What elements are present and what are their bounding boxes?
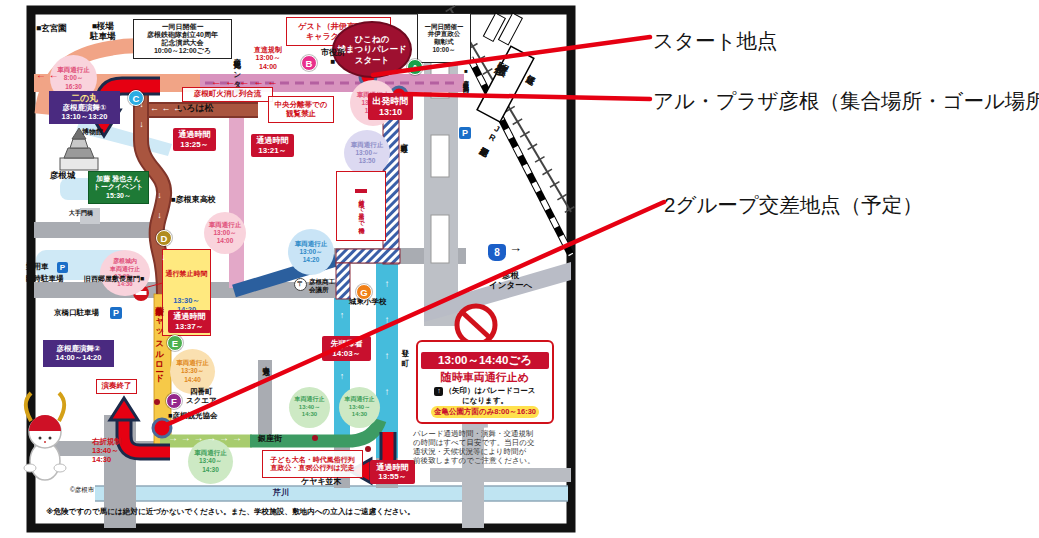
point-badge-e: E [167, 335, 183, 351]
label-chuo-street: 中央通り [261, 360, 270, 402]
closure-warning-panel: 13:00～14:40ごろ 随時車両通行止め ↑（矢印）はパレードコース になり… [416, 340, 554, 424]
label-copyright: ©彦根市 [70, 486, 94, 494]
label-saigo-gate: 旧西郷屋敷長屋門■ [84, 275, 144, 283]
warning-closure-text: 随時車両通行止め [441, 370, 529, 385]
waiting-strip: 待機区間 [355, 189, 367, 193]
pink-road-arrows: ← ← ← ← ← [211, 75, 278, 87]
label-yonbancho-square: 四番町 スクエア [186, 388, 217, 406]
noborimachi-arrows: ↑ ↑ ↑ ↑ [381, 266, 393, 410]
ban-time-title: 通行禁止時間 [163, 270, 210, 278]
label-museum: 博物館 [82, 128, 103, 136]
label-genkyuen: ■玄宮園 [36, 23, 67, 33]
parking-icon: P [57, 262, 68, 273]
brown-route-arrows-2: ↓ ↓ [154, 186, 165, 226]
post-mark-icon: 〒 [294, 278, 307, 291]
label-tourist-info: ■彦根市観光案内所 [462, 68, 469, 130]
screenshot: { "annotations": { "start": "スタート地点", "a… [0, 0, 1039, 538]
label-temp-parking: 臨時駐車場 [26, 275, 64, 284]
closure-badge-castle: 彦根城内 車両通行止 13:00～ 14:30 [100, 250, 150, 296]
label-tourism-association: ■彦根観光協会 [168, 412, 218, 421]
ninomaru-stage-box: 二の丸 彦根鹿演舞① 13:10～13:20 [49, 91, 120, 124]
closure-badge-10: 車両通行止 13:40～ 14:30 [339, 387, 380, 428]
label-right-turn-regulation: 右折規制 13:40～ 14:30 [92, 438, 122, 465]
label-city-hall: 市役所 ■ [321, 48, 345, 67]
iroha-route-arrows: ← ← ← [150, 103, 182, 113]
label-chamber-of-commerce: 〒 彦根商工 会議所 [294, 278, 335, 293]
label-sakuraba-parking: ■桜場 駐車場 [90, 21, 116, 41]
point-badge-g: G [356, 284, 372, 300]
label-keyaki-trees: ケヤキ並木 [301, 477, 342, 486]
point-badge-f: F [166, 393, 182, 409]
label-serikawa-river: 芹川 [273, 488, 289, 497]
warning-arrow-note: ↑（矢印）はパレードコース になります。 [434, 386, 535, 405]
hikeshi-join-box: 彦根町火消し列合流 [182, 87, 273, 102]
label-noborimachi: 登り町 [400, 343, 409, 375]
time-box-1325: 通過時間 13:25～ [173, 128, 216, 151]
warning-konki-band: 金亀公園方面のみ8:00～16:30 [431, 406, 539, 418]
parking-icon: P [459, 127, 471, 139]
chamber-text: 彦根商工 会議所 [309, 278, 335, 293]
label-kyobashi-parking: 京橋口駐車場 [54, 309, 99, 318]
time-box-1355: 通過時間 13:55～ [370, 460, 415, 484]
joto-road-arrows: ↑ ↑ ↑ [337, 300, 347, 392]
ginzagai-arrows: → → → → → → [168, 432, 242, 443]
up-arrow-icon: ↑ [434, 387, 443, 396]
departure-time-box: 出発時間 13:10 [368, 93, 413, 120]
label-caution: ※危険ですので馬には絶対に近づかないでください。また、学校施設、敷地内への立入は… [46, 508, 415, 517]
closure-badge-3: 車両通行止 13:00～ 13:50 [344, 130, 390, 176]
ninomaru-body: 彦根鹿演舞① 13:10～13:20 [62, 104, 108, 122]
brown-route-arrows-3: ↓ [158, 252, 169, 262]
enbu2-box: 彦根鹿演舞② 14:00～14:20 [43, 340, 114, 367]
label-interchange: 彦根 インターへ [489, 270, 532, 290]
point-badge-d: D [156, 230, 172, 246]
label-disclaimer-note: パレード通過時間・演舞・交通規制 の時間はすべて目安です。当日の交 通状況・天候… [413, 430, 535, 465]
event-box-teppotai: ー同日開催ー 彦根鉄砲隊創立40周年 記念演武大会 10:00～12:00ごろ [133, 19, 232, 59]
label-otemon-bridge: 大手門橋 [69, 210, 93, 217]
parking-icon: P [110, 307, 122, 319]
annotation-crossing-point: 2グループ交差地点（予定） [664, 191, 923, 219]
salmon-road-arrows: ← ← [36, 69, 59, 80]
brown-route-arrows-1: ↓ ↓ [136, 95, 147, 135]
closure-badge-9: 車両通行止 13:40～ 14:30 [289, 387, 330, 428]
label-hikone-castle: 彦根城 [50, 170, 76, 180]
median-viewing-ban-box: 中央分離帯での 観覧禁止 [268, 96, 334, 123]
warning-time-band: 13:00～14:40ごろ [421, 352, 549, 369]
route-8-shield: 8 [488, 244, 506, 261]
annotation-start-point: スタート地点 [653, 27, 777, 55]
closure-badge-8: 車両通行止 13:40～ 14:30 [188, 439, 233, 484]
label-straight-regulation: 直進規制 13:00～ 14:00 [254, 46, 282, 71]
label-ginzagai: 銀座街 [258, 434, 282, 443]
label-higashi-highschool: ■彦根東高校 [171, 195, 216, 204]
label-passenger-car: 乗用車 [26, 263, 49, 272]
closure-badge-4: 車両通行止 13:00～ 14:00 [204, 212, 246, 254]
route8-arrow: → [509, 240, 522, 255]
label-irohamatsu: いろは松 [177, 103, 214, 114]
waiting-body: 京町通りで出発まで待機 [357, 195, 364, 222]
time-box-1321: 通過時間 13:21～ [251, 134, 294, 157]
kodomo-procession-box: 子ども大名・時代風俗行列 直政公・直弼公行列は完走 [262, 450, 363, 478]
yellow-road-arrows: ↓ ↓ [157, 297, 168, 340]
point-badge-a: A [407, 59, 423, 75]
event-box-kenshoshiki: ー同日開催ー 井伊直政公 顕彰式 10:00～ [417, 13, 471, 63]
annotation-al-plaza: アル・プラザ彦根（集合場所・ゴール場所） [653, 87, 1039, 115]
warning-arrow-text: （矢印）はパレードコース になります。 [444, 386, 535, 405]
performance-end-box: 演奏終了 [96, 379, 137, 394]
waiting-section-box: 待機区間 京町通りで出発まで待機 [336, 171, 386, 241]
closure-badge-5: 車両通行止 13:00～ 14:20 [288, 229, 334, 275]
point-badge-b: B [301, 55, 317, 71]
label-kyomachi-street: 京町通り [399, 137, 408, 179]
talk-event-box: 加藤 雅也さん トークイベント 15:30～ [88, 171, 149, 204]
time-box-1337: 通過時間 13:37～ [168, 310, 211, 333]
